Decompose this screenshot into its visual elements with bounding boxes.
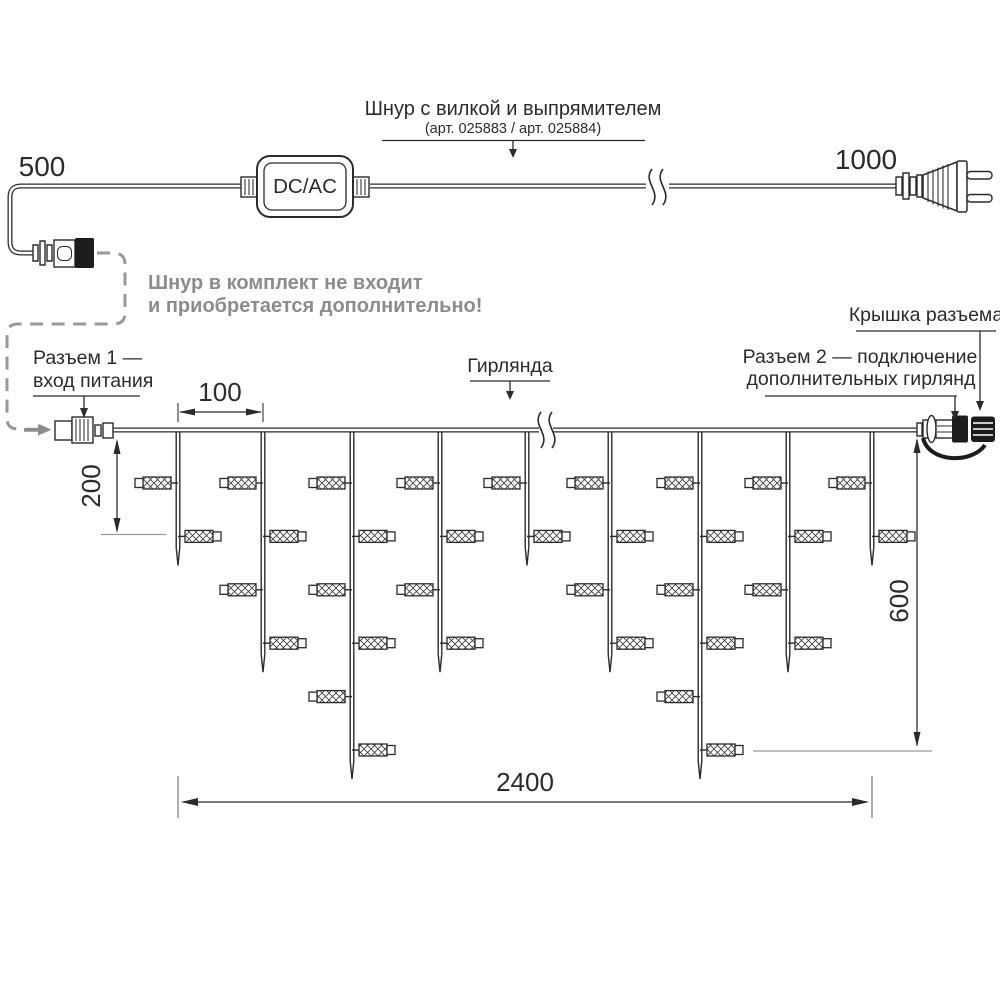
lamp-cap (387, 639, 395, 648)
arrow-down-icon (506, 391, 514, 400)
lamp-cap (823, 532, 831, 541)
lamp-cap (387, 532, 395, 541)
cord-length-left: 500 (19, 151, 66, 182)
lamp-bulb (405, 477, 433, 489)
svg-text:Разъем 1 —: Разъем 1 — (33, 347, 143, 369)
lamp-cap (475, 639, 483, 648)
lamp-cap (562, 532, 570, 541)
drop-tip (350, 761, 354, 779)
lamp-bulb (317, 477, 345, 489)
lamp-bulb (617, 637, 645, 649)
lamp-bulb (270, 637, 298, 649)
lamp-cap (309, 479, 317, 488)
drop-tip (608, 654, 612, 672)
garland-schematic: DC/AC Шнур с вилкой и выпрямителем (арт.… (0, 0, 1000, 1000)
garland-drop (745, 432, 831, 673)
diagram-canvas: DC/AC Шнур с вилкой и выпрямителем (арт.… (0, 0, 1000, 1000)
lamp-bulb (492, 477, 520, 489)
lamp-bulb (317, 584, 345, 596)
dcac-label: DC/AC (273, 175, 337, 198)
svg-text:дополнительных гирлянд: дополнительных гирлянд (747, 368, 977, 390)
lamp-bulb (795, 530, 823, 542)
arrow-up-icon (114, 439, 121, 454)
drop-tip (438, 654, 442, 672)
lamp-cap (745, 479, 753, 488)
garland-drop (220, 432, 306, 673)
lamp-bulb (795, 637, 823, 649)
lamp-bulb (359, 637, 387, 649)
mains-plug (896, 161, 992, 212)
lamp-bulb (665, 477, 693, 489)
lamp-bulb (575, 477, 603, 489)
cord-title-leader (382, 141, 645, 159)
cord-length-right: 1000 (835, 144, 897, 175)
lamp-cap (735, 532, 743, 541)
lamp-cap (484, 479, 492, 488)
lamp-cap (220, 479, 228, 488)
lamp-bulb (143, 477, 171, 489)
lamp-bulb (534, 530, 562, 542)
lamp-bulb (359, 530, 387, 542)
dimension-2400: 2400 (178, 767, 872, 818)
lamp-bulb (665, 691, 693, 703)
garland-connector1 (24, 417, 113, 443)
lamp-cap (823, 639, 831, 648)
lamp-bulb (447, 530, 475, 542)
arrow-left-icon (179, 409, 195, 416)
lamp-cap (745, 585, 753, 594)
plug-prong (967, 172, 992, 180)
arrow-right-icon (38, 425, 51, 436)
arrow-up-icon (914, 438, 921, 453)
plug-prong (967, 195, 992, 203)
lamp-bulb (617, 530, 645, 542)
lamp-bulb (447, 637, 475, 649)
svg-text:200: 200 (76, 464, 106, 507)
lamp-cap (735, 746, 743, 755)
lamp-bulb (228, 584, 256, 596)
arrow-down-icon (976, 401, 984, 411)
drop-tip (525, 547, 529, 565)
garland-drop (309, 432, 395, 780)
lamp-cap (397, 585, 405, 594)
connector-black-cap (75, 238, 94, 268)
dimension-100: 100 (178, 377, 263, 422)
lamp-cap (657, 692, 665, 701)
garland-drop (829, 432, 915, 566)
garland-drop (484, 432, 570, 566)
connector2-label: Разъем 2 — подключение дополнительных ги… (743, 346, 978, 421)
garland-drop (657, 432, 743, 780)
lamp-bulb (837, 477, 865, 489)
lamp-cap (135, 479, 143, 488)
garland-drops (135, 432, 915, 780)
lamp-bulb (753, 584, 781, 596)
lamp-bulb (879, 530, 907, 542)
dashed-connection-path (7, 253, 125, 435)
lamp-bulb (665, 584, 693, 596)
lamp-bulb (317, 691, 345, 703)
cord-break-icon (649, 169, 666, 205)
drop-tip (786, 654, 790, 672)
svg-text:100: 100 (198, 377, 241, 407)
arrow-down-icon (914, 732, 921, 747)
not-included-note-line1: Шнур в комплект не входит (148, 272, 423, 294)
lamp-cap (645, 532, 653, 541)
lamp-cap (309, 585, 317, 594)
arrow-right-icon (246, 409, 262, 416)
lamp-cap (213, 532, 221, 541)
garland-connector2 (917, 416, 995, 459)
drop-tip (870, 547, 874, 565)
lamp-cap (475, 532, 483, 541)
drop-tip (261, 654, 265, 672)
svg-text:Разъем 2 — подключение: Разъем 2 — подключение (743, 346, 978, 368)
svg-text:2400: 2400 (496, 767, 554, 797)
lamp-cap (397, 479, 405, 488)
lamp-bulb (228, 477, 256, 489)
dcac-converter: DC/AC (241, 156, 369, 217)
garland-drop (135, 432, 221, 566)
cord-subtitle: (арт. 025883 / арт. 025884) (425, 121, 601, 137)
cord-output-connector (33, 238, 94, 268)
garland-drop (567, 432, 653, 673)
lamp-cap (387, 746, 395, 755)
connector1-label: Разъем 1 — вход питания (33, 347, 153, 418)
svg-text:Крышка разъема: Крышка разъема (849, 304, 1000, 326)
arrow-down-icon (114, 518, 121, 533)
lamp-bulb (405, 584, 433, 596)
svg-text:вход питания: вход питания (33, 370, 153, 392)
lamp-cap (220, 585, 228, 594)
lamp-bulb (707, 530, 735, 542)
lamp-cap (309, 692, 317, 701)
svg-text:600: 600 (884, 579, 914, 622)
garland-break-icon (538, 412, 555, 448)
arrow-down-icon (509, 149, 517, 158)
lamp-bulb (359, 744, 387, 756)
lamp-cap (298, 532, 306, 541)
lamp-cap (657, 479, 665, 488)
lamp-bulb (753, 477, 781, 489)
lamp-bulb (575, 584, 603, 596)
garland-section: Разъем 1 — вход питания Гирлянда Крышка … (24, 304, 1000, 818)
lamp-cap (567, 585, 575, 594)
not-included-note-line2: и приобретается дополнительно! (148, 295, 482, 317)
arrow-left-icon (181, 798, 198, 806)
lamp-cap (567, 479, 575, 488)
connector2-body (952, 416, 968, 443)
lamp-cap (657, 585, 665, 594)
svg-text:Гирлянда: Гирлянда (467, 355, 553, 377)
garland-label: Гирлянда (467, 355, 553, 400)
lamp-bulb (270, 530, 298, 542)
garland-drop (397, 432, 483, 673)
lamp-cap (645, 639, 653, 648)
lamp-cap (907, 532, 915, 541)
lamp-cap (298, 639, 306, 648)
cord-title: Шнур с вилкой и выпрямителем (365, 98, 662, 120)
drop-tip (176, 547, 180, 565)
lamp-bulb (185, 530, 213, 542)
lamp-bulb (707, 637, 735, 649)
lamp-cap (735, 639, 743, 648)
lamp-bulb (707, 744, 735, 756)
lamp-cap (829, 479, 837, 488)
arrow-right-icon (852, 798, 869, 806)
drop-tip (698, 761, 702, 779)
